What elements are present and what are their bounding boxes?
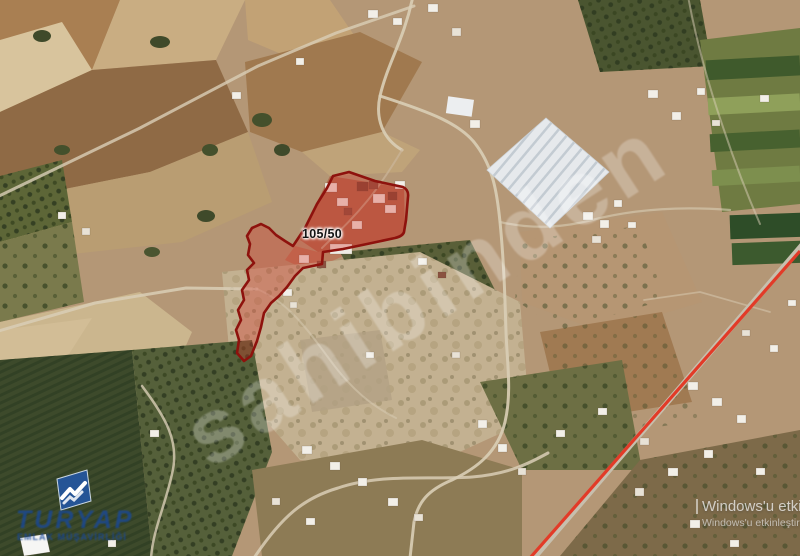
agency-logo: TURYAP EMLAK MÜŞAVİRLİĞİ — [8, 462, 198, 552]
parcel-number-label: 105/50 — [302, 227, 342, 241]
satellite-listing-image: 105/50 sahibinden TURYAP EMLAK MÜŞAVİRLİ… — [0, 0, 800, 556]
cursor-bar — [696, 499, 698, 514]
agency-subtitle: EMLAK MÜŞAVİRLİĞİ — [17, 532, 127, 542]
agency-brand-name: TURYAP — [16, 506, 134, 535]
